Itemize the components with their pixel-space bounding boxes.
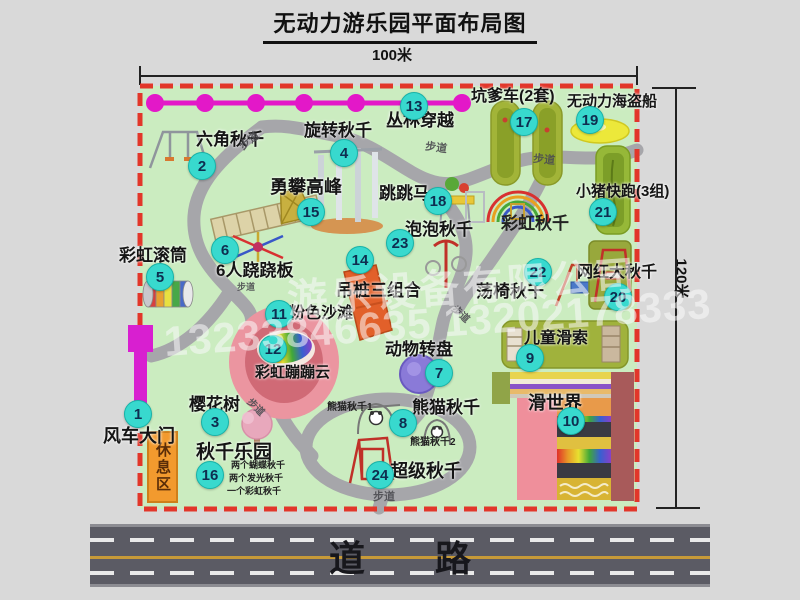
animal-turntable-icon bbox=[400, 355, 438, 393]
park-map-drawing bbox=[0, 0, 800, 600]
road: 道路 bbox=[90, 524, 710, 587]
pink-beach-bounce-cloud-icon bbox=[229, 305, 339, 419]
park-layout-plan: 无动力游乐园平面布局图 100米 120米 bbox=[0, 0, 800, 600]
rest-area-label: 休息区 bbox=[152, 442, 173, 493]
pirate-ship-icon bbox=[571, 119, 629, 143]
road-label: 道路 bbox=[90, 527, 710, 584]
kids-zipline-icon bbox=[502, 321, 628, 368]
big-swing-icon bbox=[589, 241, 631, 309]
rest-area: 休息区 bbox=[147, 431, 178, 503]
rainbow-roller-icon bbox=[143, 281, 193, 307]
piggy-run-icon bbox=[596, 146, 630, 234]
